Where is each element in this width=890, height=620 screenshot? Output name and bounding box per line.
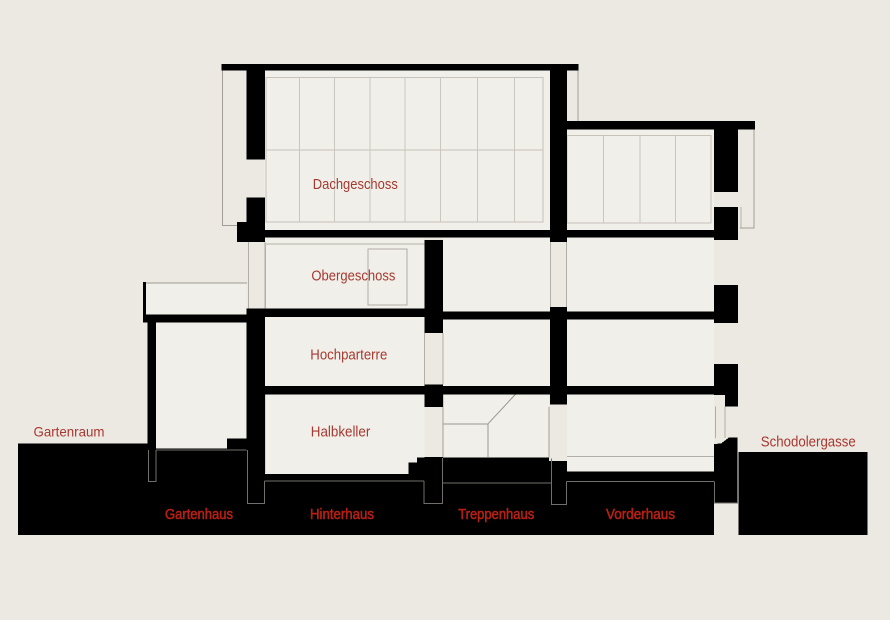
svg-text:Hinterhaus: Hinterhaus — [310, 506, 374, 523]
svg-text:Treppenhaus: Treppenhaus — [458, 506, 534, 523]
svg-text:Gartenhaus: Gartenhaus — [165, 506, 233, 523]
svg-text:Halbkeller: Halbkeller — [311, 425, 371, 441]
svg-text:Obergeschoss: Obergeschoss — [311, 267, 395, 284]
svg-text:Gartenraum: Gartenraum — [34, 423, 105, 439]
svg-text:Vorderhaus: Vorderhaus — [606, 506, 675, 523]
svg-text:Hochparterre: Hochparterre — [310, 346, 387, 363]
svg-text:Schodolergasse: Schodolergasse — [761, 434, 856, 450]
svg-text:Dachgeschoss: Dachgeschoss — [313, 176, 398, 193]
